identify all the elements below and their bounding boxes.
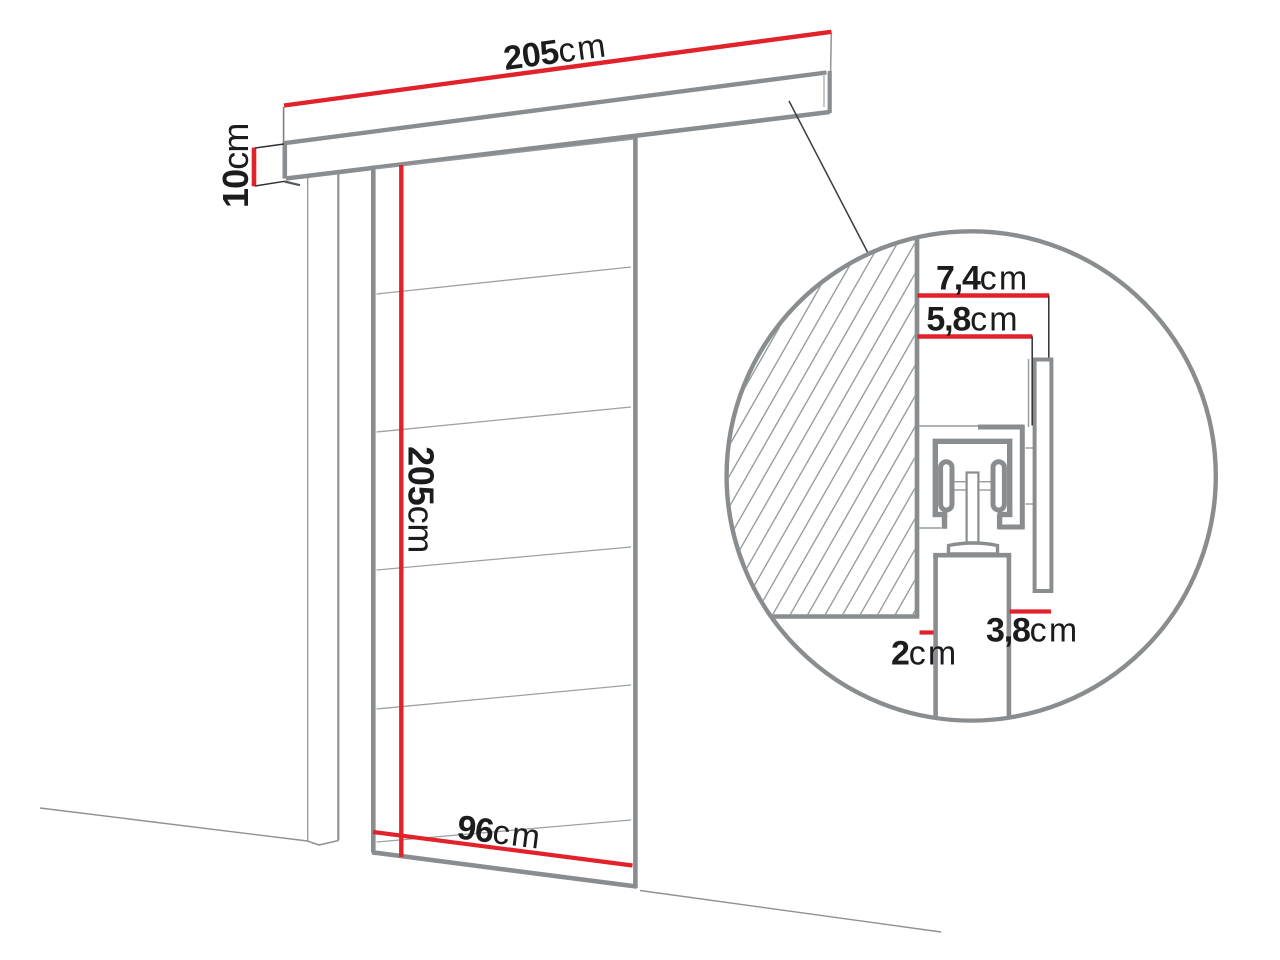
svg-text:10cm: 10cm <box>215 124 256 208</box>
svg-text:205cm: 205cm <box>401 446 442 553</box>
svg-text:2cm: 2cm <box>891 635 958 673</box>
svg-text:3,8cm: 3,8cm <box>986 612 1079 650</box>
svg-text:7,4cm: 7,4cm <box>936 260 1029 298</box>
svg-text:5,8cm: 5,8cm <box>926 301 1019 339</box>
